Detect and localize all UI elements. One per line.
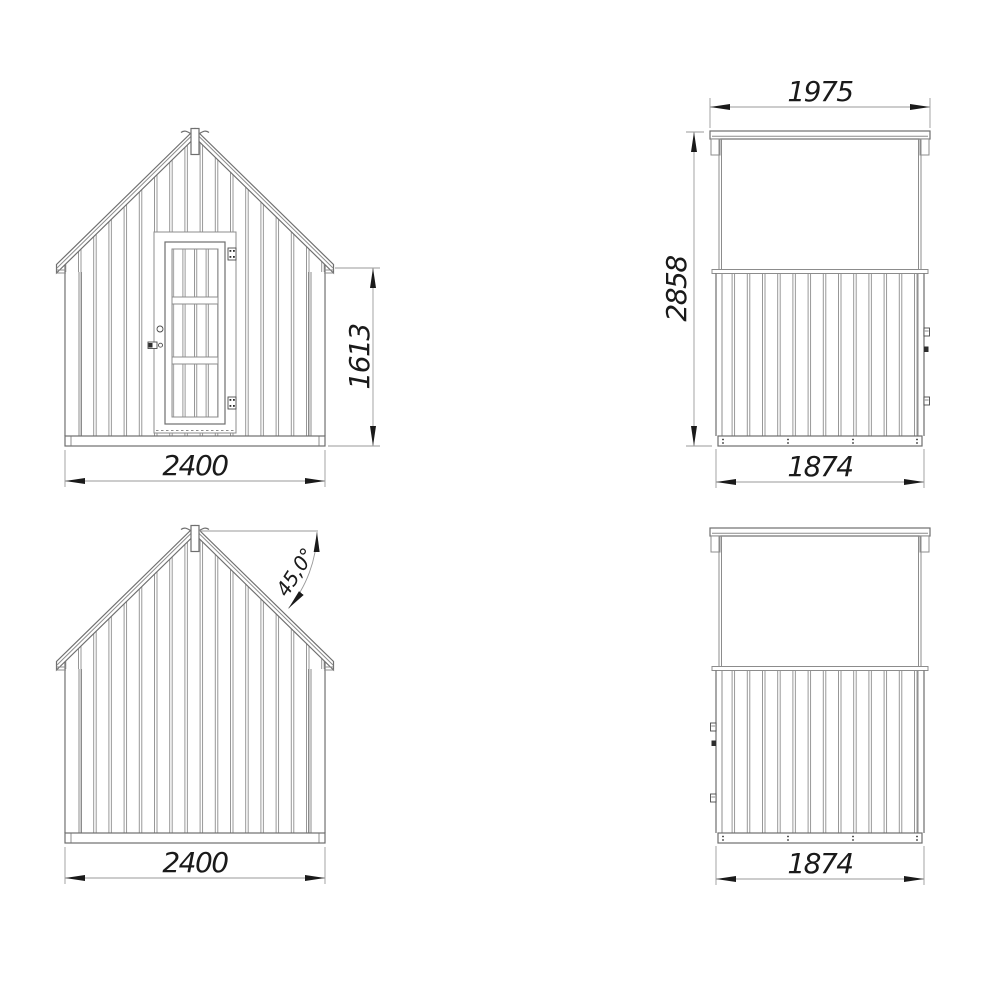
side-door-hinge-bottom bbox=[924, 397, 930, 405]
dim-side-roof-length-label: 1975 bbox=[787, 75, 853, 108]
technical-drawing: 2400 1613 1975 bbox=[0, 0, 1000, 1000]
dim-side-total-height: 2858 bbox=[660, 132, 712, 446]
dim-side-wall-length-label: 1874 bbox=[787, 450, 852, 483]
dim-front-wall-height-label: 1613 bbox=[343, 324, 376, 390]
dim-front-width: 2400 bbox=[65, 449, 325, 487]
front-elevation-view: 2400 1613 bbox=[57, 129, 381, 488]
blueprint-canvas: 2400 1613 1975 bbox=[0, 0, 1000, 1000]
side-door-hinge-top bbox=[711, 723, 717, 731]
dim-roof-angle-label: 45,0° bbox=[271, 544, 319, 601]
door-hinge-bottom bbox=[228, 397, 236, 409]
dim-side-total-height-label: 2858 bbox=[660, 256, 693, 322]
dim-rear-width-label: 2400 bbox=[162, 846, 228, 879]
side-door-handle bbox=[712, 741, 717, 747]
side-elevation-right-view: 1975 2858 1874 bbox=[660, 75, 930, 488]
side-elevation-left-view: 1874 bbox=[710, 528, 930, 885]
door-lock bbox=[148, 342, 163, 349]
dim-front-wall-height: 1613 bbox=[328, 268, 380, 446]
dim-rear-width: 2400 bbox=[65, 846, 325, 884]
dim-side-left-wall-length-label: 1874 bbox=[787, 847, 852, 880]
door-handle bbox=[157, 326, 163, 332]
side-door-hinge-bottom bbox=[711, 794, 717, 802]
door-hardware-edge bbox=[711, 723, 717, 802]
dim-side-roof-length: 1975 bbox=[710, 75, 930, 128]
door bbox=[148, 232, 236, 433]
dim-side-wall-length: 1874 bbox=[716, 449, 924, 488]
rear-elevation-view: 45,0° 2400 bbox=[57, 526, 334, 885]
side-door-handle bbox=[924, 347, 929, 353]
side-door-hinge-top bbox=[924, 328, 930, 336]
dim-front-width-label: 2400 bbox=[162, 449, 228, 482]
dim-side-left-wall-length: 1874 bbox=[716, 846, 924, 885]
door-hinge-top bbox=[228, 248, 236, 260]
door-hardware-edge bbox=[924, 328, 930, 405]
